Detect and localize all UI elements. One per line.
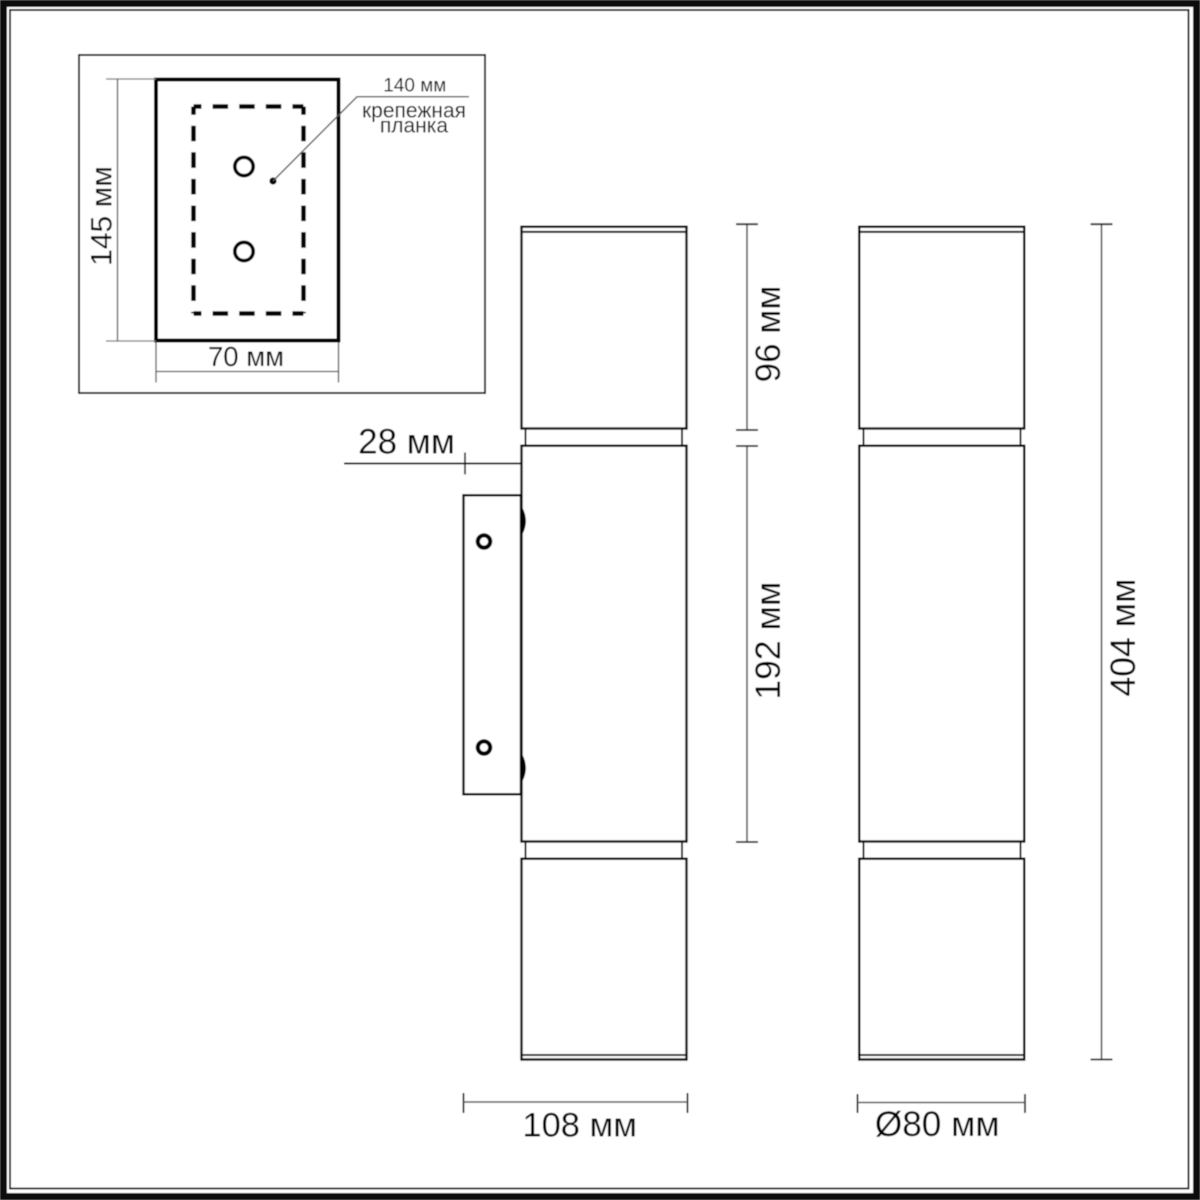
svg-text:145 мм: 145 мм bbox=[86, 166, 119, 266]
svg-text:108 мм: 108 мм bbox=[522, 1107, 637, 1145]
svg-text:140 мм: 140 мм bbox=[383, 76, 446, 97]
svg-text:планка: планка bbox=[380, 115, 449, 138]
svg-text:192 мм: 192 мм bbox=[748, 582, 788, 700]
svg-text:Ø80 мм: Ø80 мм bbox=[875, 1105, 1000, 1144]
svg-text:70 мм: 70 мм bbox=[208, 341, 284, 372]
svg-text:28 мм: 28 мм bbox=[358, 423, 455, 462]
svg-text:404 мм: 404 мм bbox=[1103, 579, 1143, 697]
svg-text:96 мм: 96 мм bbox=[749, 286, 788, 383]
